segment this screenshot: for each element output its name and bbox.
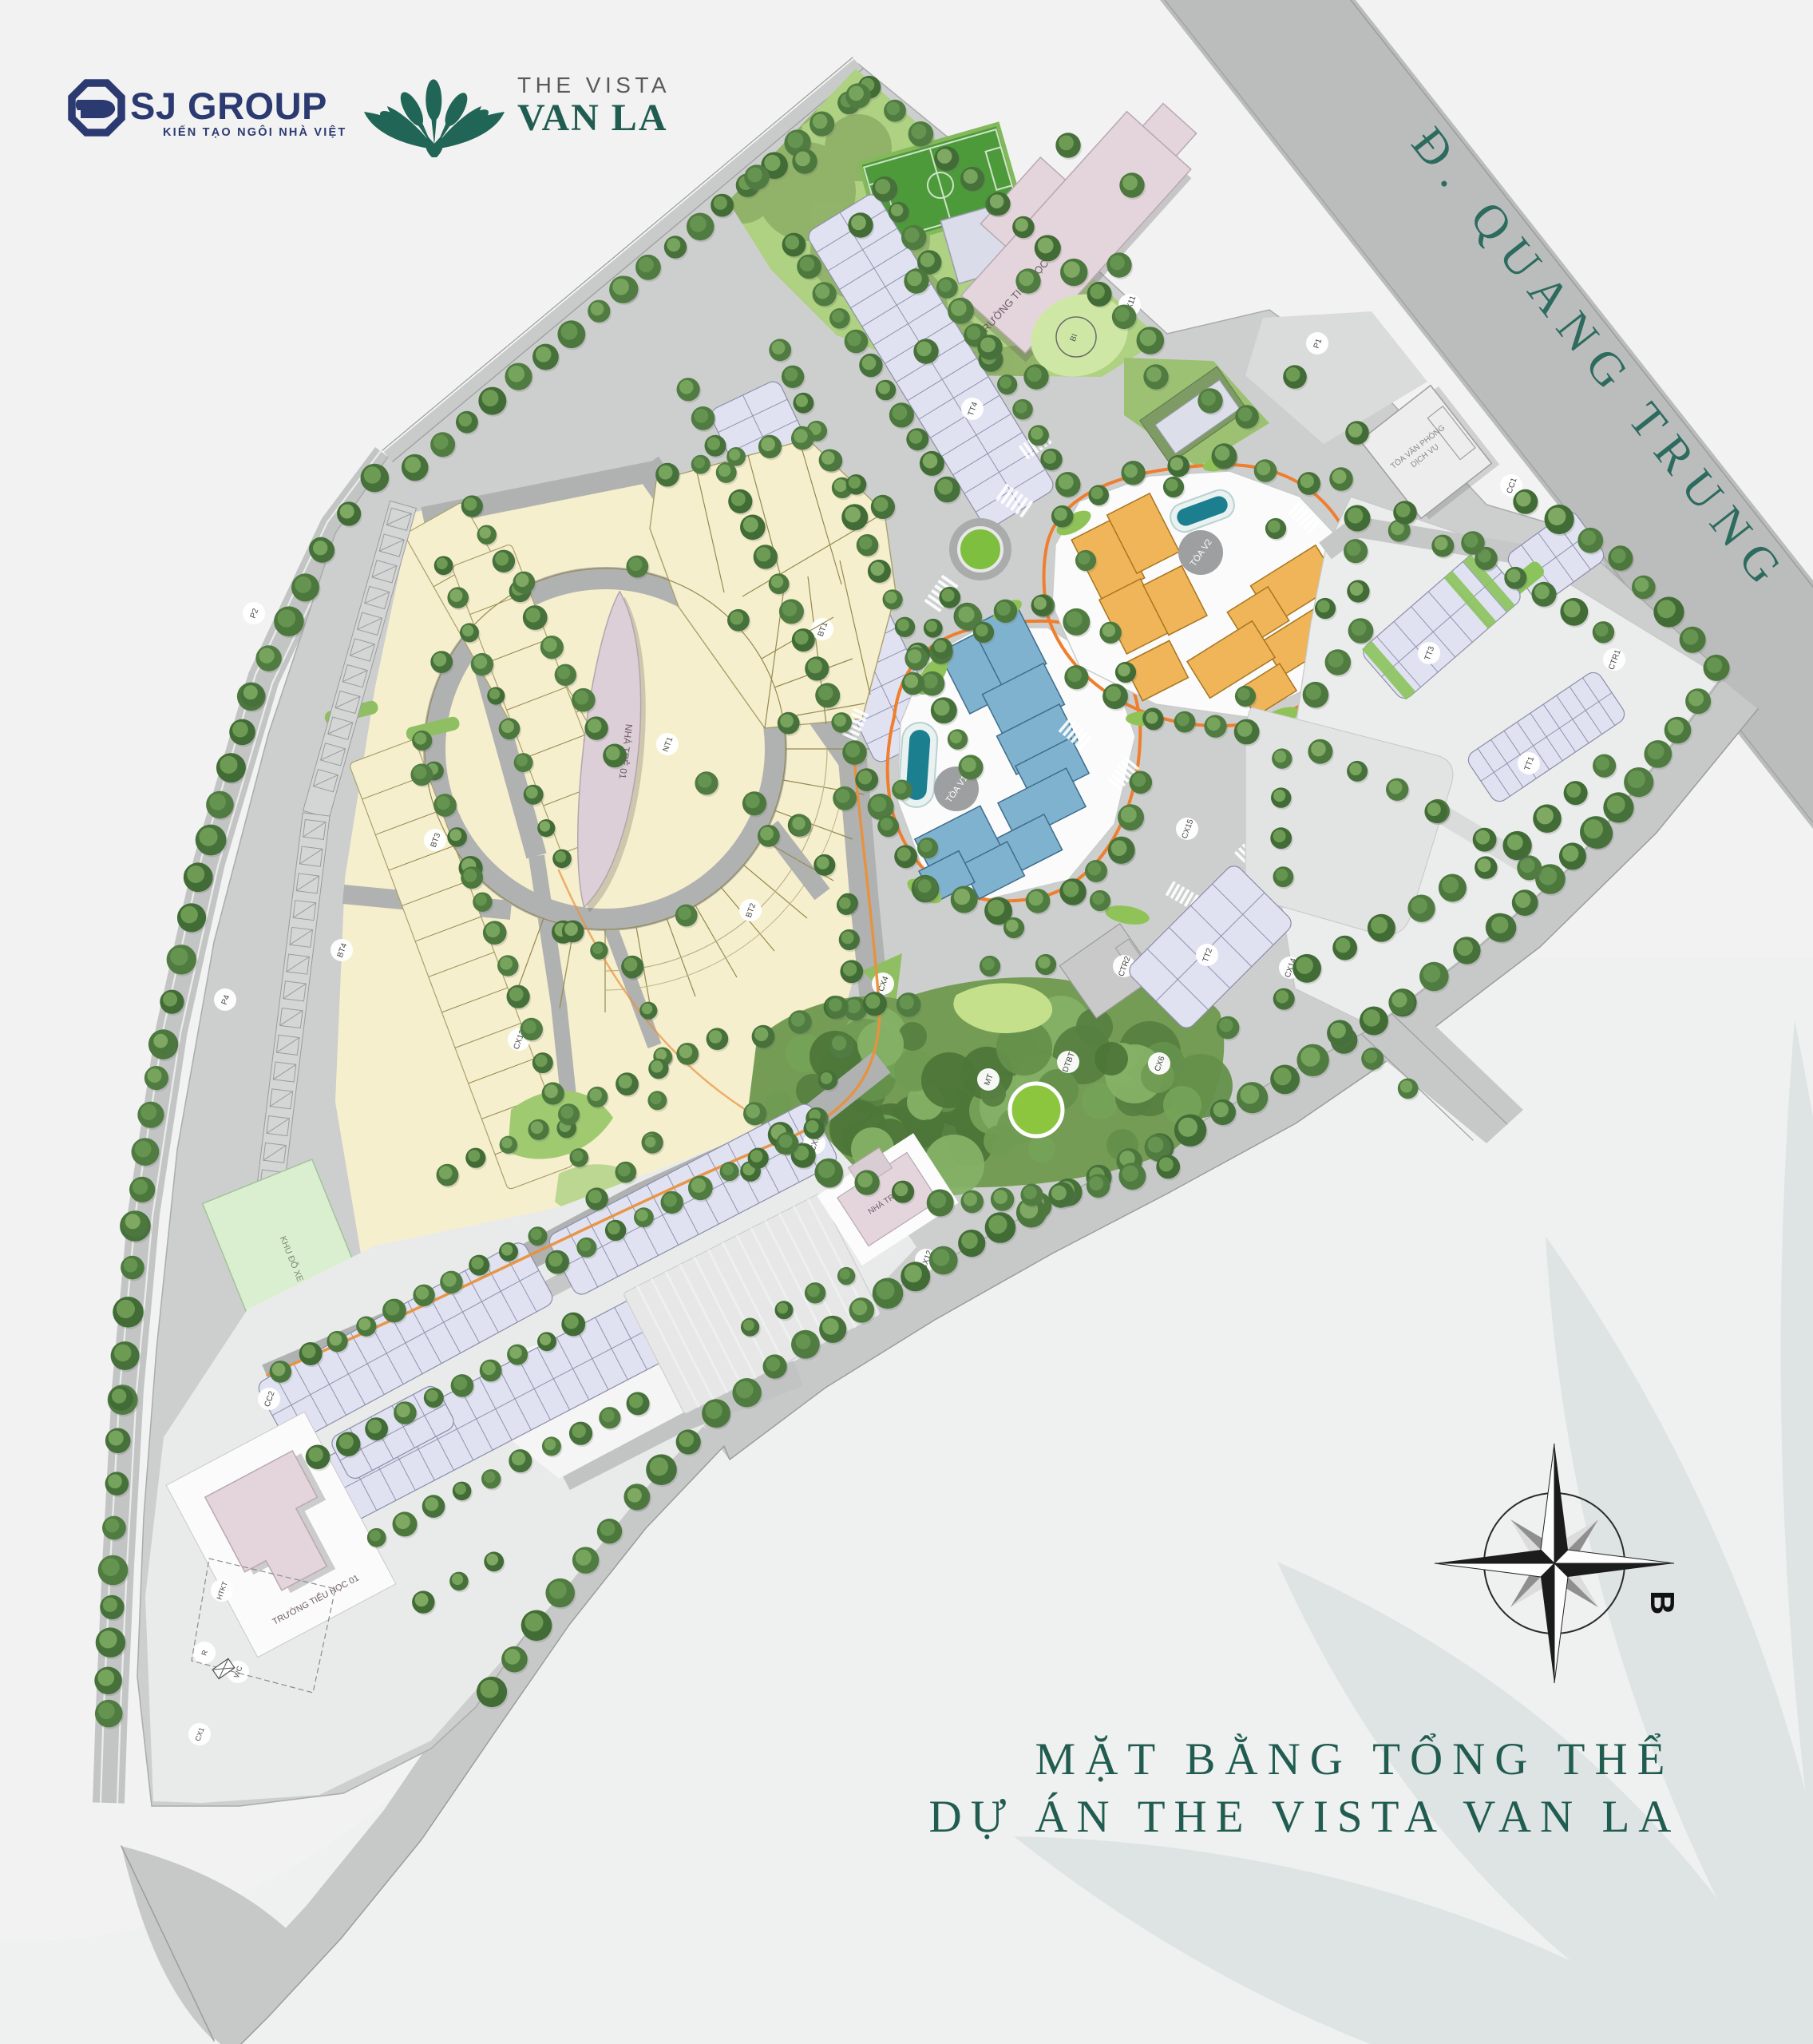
svg-text:B: B [1644,1590,1681,1614]
svg-text:THE VISTA: THE VISTA [517,73,671,97]
svg-text:VAN LA: VAN LA [517,97,667,139]
svg-text:MẶT BẰNG TỔNG THỂ: MẶT BẰNG TỔNG THỂ [1035,1733,1675,1785]
svg-text:SJ GROUP: SJ GROUP [130,85,327,127]
svg-text:KIẾN TẠO NGÔI NHÀ VIỆT: KIẾN TẠO NGÔI NHÀ VIỆT [163,125,346,139]
svg-text:DỰ ÁN THE VISTA VAN LA: DỰ ÁN THE VISTA VAN LA [929,1792,1680,1842]
